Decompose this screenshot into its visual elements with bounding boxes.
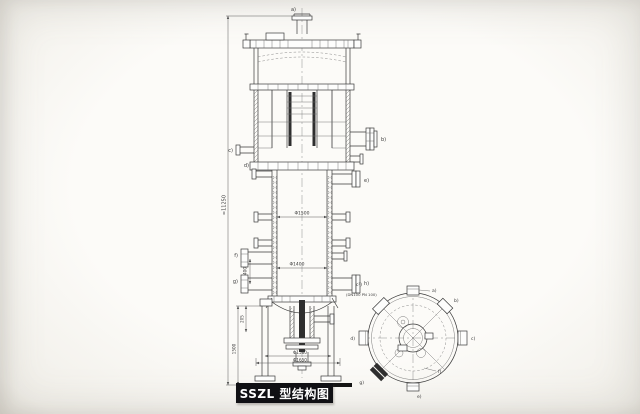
plan-label-g: g) [359, 380, 364, 386]
technical-drawing-svg: ≈11250 Φ1500 Φ1400 400 1500 205 Φ1580 Φ1… [0, 0, 640, 414]
nozzle-label-b: b) [381, 137, 386, 143]
dim-base-bolt-circle: Φ1580 [293, 350, 307, 355]
dim-nozzle-spacing: 400 [243, 267, 248, 275]
side-nozzle-e [332, 171, 360, 187]
dim-base-outer-circle: Φ1650 [293, 358, 307, 363]
dim-shell-dia: Φ1500 [295, 211, 310, 217]
label-leaders [419, 290, 436, 371]
bottom-center-assembly [284, 300, 334, 370]
nozzle-label-e: e) [364, 178, 369, 184]
plan-label-f: f) [438, 369, 442, 375]
drawing-title: SSZL 型结构图 [240, 385, 330, 402]
shell-bottom-flange [250, 162, 354, 170]
dim-overall-height: ≈11250 [222, 195, 228, 215]
dim-lower-dia: Φ1400 [290, 262, 305, 268]
nozzle-label-h: h) [364, 281, 369, 287]
title-box: SSZL 型结构图 [236, 383, 333, 403]
side-nozzle-g [241, 275, 272, 293]
side-nozzle-f [241, 249, 272, 267]
plan-label-a: a) [432, 288, 437, 294]
plan-note-label: c²) [356, 282, 362, 288]
plan-note-text: (DN100 PN 100) [346, 292, 377, 297]
side-nozzle-d [252, 169, 272, 179]
nozzle-label-g: g) [233, 279, 238, 285]
dimensions: ≈11250 Φ1500 Φ1400 400 1500 205 Φ1580 Φ1… [222, 16, 341, 385]
nozzle-label-a: a) [291, 7, 296, 13]
plan-label-c: c) [471, 336, 475, 342]
plan-view: c²) (DN100 PN 100) a) b) c) d) e) f) g) [346, 282, 475, 400]
plan-label-d: d) [350, 336, 355, 342]
dim-bottom-clearance: 205 [240, 315, 245, 323]
side-nozzle-b [350, 128, 377, 150]
top-plate-lug [266, 33, 284, 40]
scanned-drawing-page: ≈11250 Φ1500 Φ1400 400 1500 205 Φ1580 Φ1… [0, 0, 640, 414]
plan-label-b: b) [454, 298, 459, 304]
plan-label-e: e) [417, 394, 422, 400]
elevation-view: ≈11250 Φ1500 Φ1400 400 1500 205 Φ1580 Φ1… [222, 7, 387, 385]
dim-leg-height: 1500 [232, 343, 237, 354]
top-head-assembly [243, 33, 361, 48]
side-nozzle-c [236, 145, 254, 155]
nozzle-label-f: f) [234, 253, 238, 259]
nozzle-label-d: d) [244, 163, 249, 169]
girth-flange [250, 84, 354, 90]
bottom-side-fitting [260, 299, 272, 306]
nozzle-label-c: c) [228, 148, 233, 154]
